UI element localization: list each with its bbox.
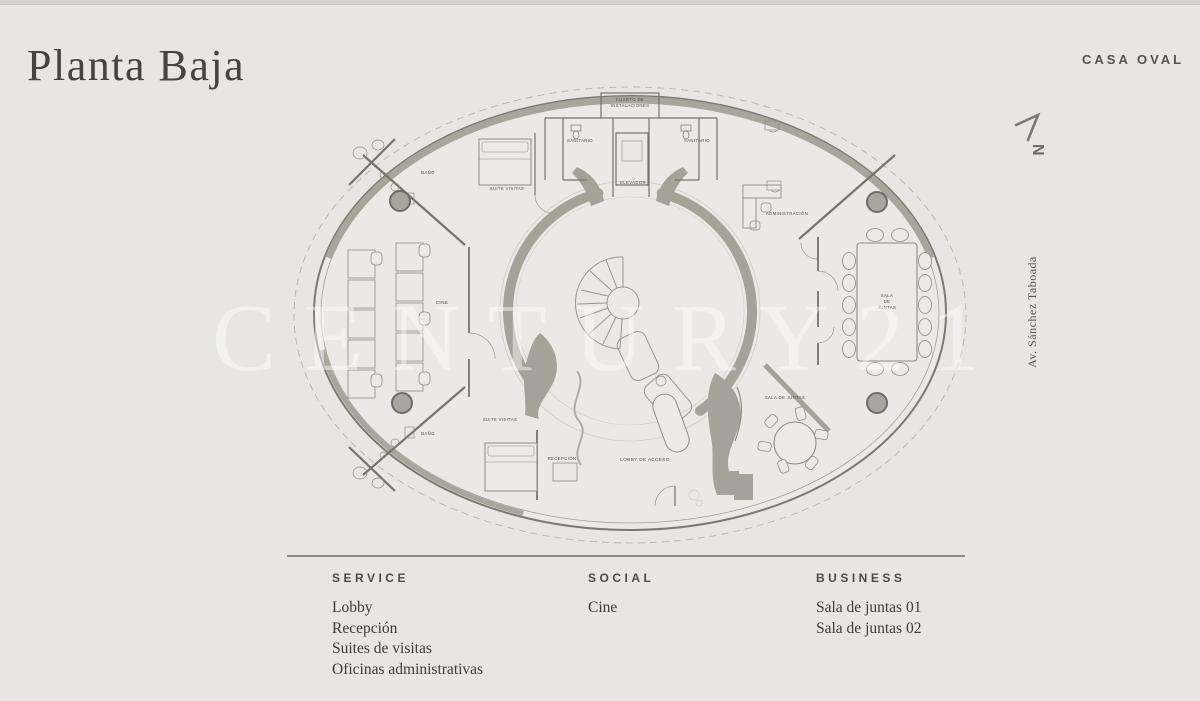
street-label: Av. Sánchez Taboada [1025, 247, 1039, 377]
legend-item: Suites de visitas [332, 639, 483, 660]
legend-item: Recepción [332, 619, 483, 640]
legend-title-social: SOCIAL [588, 571, 654, 585]
room-label-cuarto-1: CUARTO DE [616, 97, 644, 102]
room-label-administracion: ADMINISTRACIÓN [766, 211, 808, 216]
legend-item: Lobby [332, 598, 483, 619]
legend-divider [287, 555, 965, 557]
room-label-elevador: ELEVADOR [620, 180, 646, 185]
brand-label: CASA OVAL [1082, 52, 1184, 67]
room-label-sanitario-right: SANITARIO [684, 138, 710, 143]
top-accent-bar [0, 0, 1200, 5]
room-label-sala-e-1: SALA [881, 293, 893, 298]
room-label-sala-e-3: JUNTAS [878, 305, 897, 310]
legend-item: Sala de juntas 01 [816, 598, 921, 619]
room-label-bano-nw: BAÑO [421, 170, 435, 175]
legend-item: Sala de juntas 02 [816, 619, 921, 640]
legend-item: Cine [588, 598, 654, 619]
room-label-suite-nw: SUITE VISITAS [490, 186, 525, 191]
legend-column-social: SOCIAL Cine [588, 571, 654, 619]
room-label-bano-sw: BAÑO [421, 431, 435, 436]
north-label: N [1029, 144, 1046, 156]
legend-title-service: SERVICE [332, 571, 483, 585]
room-label-recepcion: RECEPCIÓN [548, 456, 577, 461]
page-title: Planta Baja [27, 40, 245, 91]
room-label-sanitario-left: SANITARIO [567, 138, 593, 143]
room-label-suite-sw: SUITE VISITAS [483, 417, 518, 422]
room-label-sala-se: SALA DE JUNTAS [765, 395, 805, 400]
legend-column-service: SERVICE Lobby Recepción Suites de visita… [332, 571, 483, 680]
legend-column-business: BUSINESS Sala de juntas 01 Sala de junta… [816, 571, 921, 639]
room-label-lobby: LOBBY DE ACCESO [620, 457, 669, 462]
legend-title-business: BUSINESS [816, 571, 921, 585]
legend-item: Oficinas administrativas [332, 660, 483, 681]
room-label-cuarto-2: INSTALACIONES [611, 103, 650, 108]
room-label-sala-e-2: DE [884, 299, 891, 304]
floor-plan: CUARTO DE INSTALACIONES SANITARIO SANITA… [245, 75, 1015, 555]
room-label-cine: CINE [436, 300, 449, 305]
